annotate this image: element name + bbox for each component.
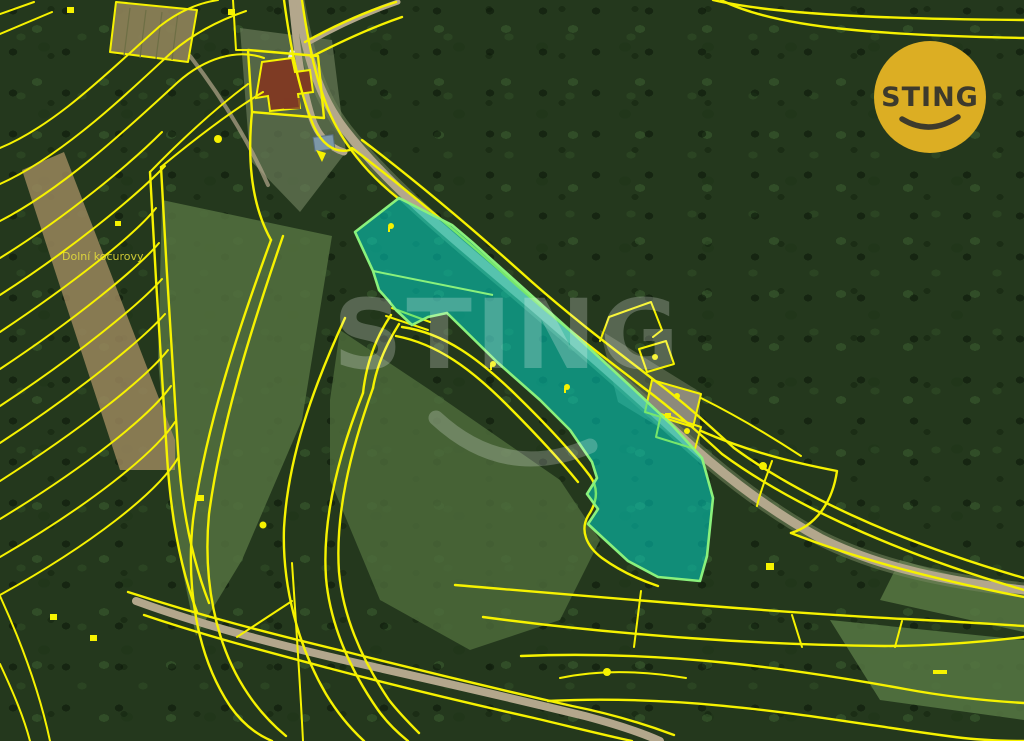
parcel-symbol	[50, 614, 57, 620]
place-label: Dolní kocurovy	[62, 250, 144, 263]
parcel-symbol	[90, 635, 97, 641]
meadow-patch	[830, 620, 1024, 720]
sting-logo: STING	[874, 41, 986, 153]
boundary-line	[311, 17, 402, 57]
boundary-line	[792, 615, 802, 647]
parcel-symbol	[684, 428, 690, 434]
parcel-symbol	[214, 135, 222, 143]
boundary-line	[0, 2, 34, 14]
parcel-symbol	[388, 227, 390, 232]
parcel-symbol	[67, 7, 74, 13]
parcel-symbol	[759, 462, 767, 470]
road	[136, 601, 660, 741]
parcel-symbol	[665, 413, 671, 418]
boundary-line	[0, 12, 52, 34]
boundary-line	[0, 596, 50, 741]
logo-text: STING	[881, 82, 979, 113]
parcel-symbol	[674, 393, 680, 399]
parcel-symbol	[603, 668, 611, 676]
map-overlay: Dolní kocurovy STING STING	[0, 0, 1024, 741]
boundary-line	[713, 0, 1024, 20]
parcel-symbol	[933, 670, 947, 674]
boundary-line	[701, 431, 837, 533]
parcel-symbol	[260, 522, 267, 529]
parcel-symbol	[197, 495, 204, 501]
parcel-symbol	[766, 563, 774, 570]
boundary-line	[0, 664, 30, 741]
shed	[284, 98, 300, 109]
watermark-text: STING	[333, 279, 682, 391]
parcel-symbol	[228, 9, 235, 15]
parcel-symbol	[115, 221, 121, 226]
boundary-line	[150, 84, 248, 172]
boundary-line	[560, 672, 686, 678]
map-viewport[interactable]: Dolní kocurovy STING STING	[0, 0, 1024, 741]
boundary-line	[0, 458, 178, 595]
